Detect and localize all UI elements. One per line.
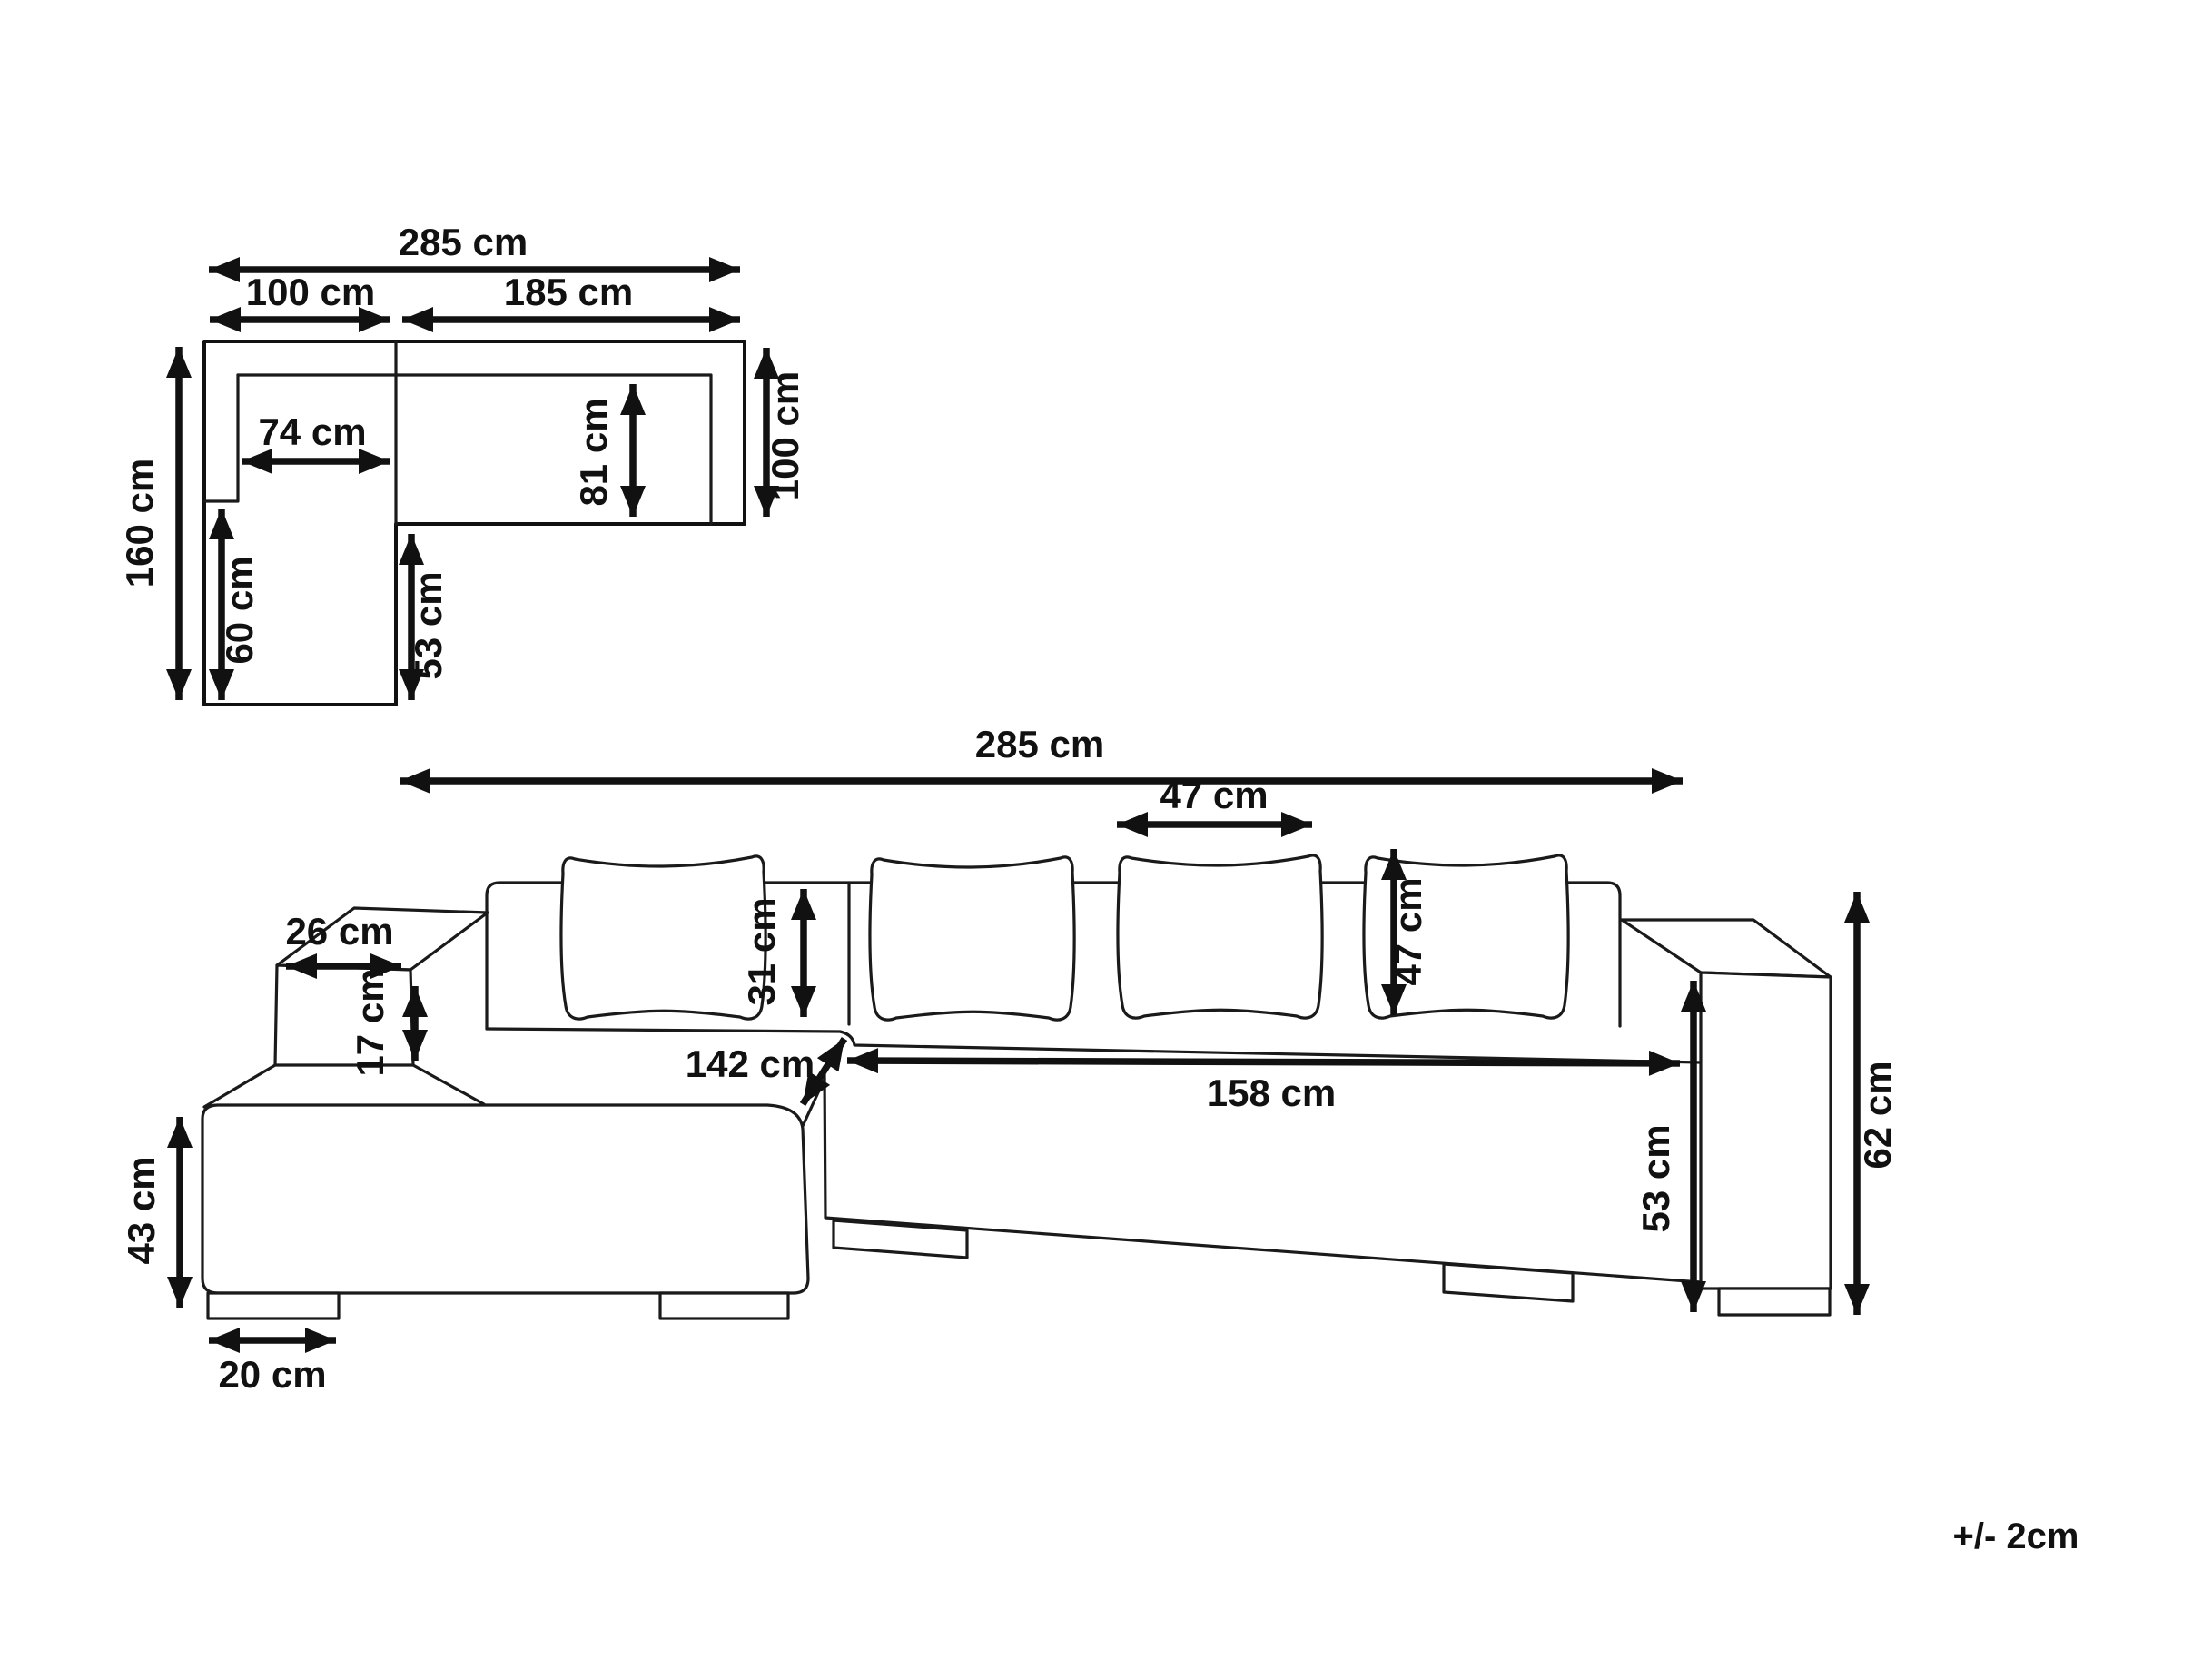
top-view: 285 cm 100 cm 185 cm 74 cm 160 cm 60 cm [118, 221, 806, 705]
dim-armrest-top-depth-label: 26 cm [285, 910, 393, 953]
chaise-foot-left [208, 1293, 339, 1318]
dim-chaise-height: 43 cm [120, 1117, 180, 1308]
right-armrest-top-face [1622, 920, 1831, 977]
dim-top-chaise-length-label: 60 cm [218, 556, 261, 664]
dim-top-right-seat-depth: 81 cm [572, 384, 633, 517]
dim-top-right-seat-depth-label: 81 cm [572, 398, 615, 506]
top-view-armrest-inner-line [204, 375, 238, 501]
left-armrest-chaise-edge-right [413, 1065, 484, 1104]
diagram-canvas: 285 cm 100 cm 185 cm 74 cm 160 cm 60 cm [0, 0, 2212, 1659]
dim-armrest-above-seat-label: 17 cm [349, 968, 391, 1076]
dim-top-seat-width: 74 cm [242, 410, 390, 461]
dim-chaise-length-label: 142 cm [686, 1042, 815, 1085]
dim-foot-width-label: 20 cm [218, 1353, 326, 1396]
left-armrest-chaise-edge-left [204, 1065, 275, 1107]
dim-top-seat-depth: 53 cm [407, 534, 449, 700]
cushion-2 [870, 857, 1074, 1020]
dim-chaise-height-label: 43 cm [120, 1156, 163, 1264]
dim-top-total-depth-label: 160 cm [118, 459, 161, 588]
dim-top-right-depth-label: 100 cm [764, 371, 806, 500]
chaise-foot-right [660, 1293, 788, 1318]
dim-top-chaise-length: 60 cm [218, 509, 261, 700]
dim-front-total-width-label: 285 cm [975, 723, 1104, 765]
left-armrest-front-face [275, 965, 413, 1065]
dim-seat-width: 158 cm [847, 1061, 1680, 1114]
dim-top-right-width-label: 185 cm [504, 271, 633, 313]
dim-top-right-width: 185 cm [402, 271, 740, 320]
dim-cushion-width-label: 47 cm [1160, 774, 1268, 816]
cushion-3 [1118, 855, 1322, 1018]
dim-top-total-depth: 160 cm [118, 347, 179, 700]
top-view-outline [204, 341, 745, 705]
dim-seat-height: 53 cm [1634, 981, 1694, 1312]
dim-armrest-height: 62 cm [1856, 892, 1899, 1315]
dim-foot-width: 20 cm [209, 1340, 336, 1396]
sofa-dimension-diagram: 285 cm 100 cm 185 cm 74 cm 160 cm 60 cm [0, 0, 2212, 1659]
dim-front-total-width: 285 cm [400, 723, 1683, 781]
cushion-1 [561, 856, 765, 1019]
seat-front-edge [487, 1029, 1701, 1062]
dim-top-total-width-label: 285 cm [399, 221, 528, 263]
dim-chaise-length: 142 cm [686, 1039, 844, 1104]
right-armrest-front-face [1701, 973, 1831, 1289]
dim-backrest-height-label: 31 cm [740, 897, 783, 1005]
tolerance-note: +/- 2cm [1953, 1516, 2079, 1556]
dim-top-total-width: 285 cm [209, 221, 740, 270]
dim-top-seat-width-label: 74 cm [258, 410, 366, 453]
dim-top-left-width: 100 cm [210, 271, 390, 320]
dim-seat-height-label: 53 cm [1634, 1124, 1677, 1232]
right-armrest-foot [1719, 1289, 1830, 1315]
dim-top-right-depth: 100 cm [764, 348, 806, 517]
right-base-foot-right [1444, 1264, 1573, 1301]
dim-armrest-height-label: 62 cm [1856, 1061, 1899, 1169]
dim-top-seat-depth-label: 53 cm [407, 571, 449, 679]
dim-top-left-width-label: 100 cm [246, 271, 375, 313]
dim-cushion-height-label: 47 cm [1387, 877, 1429, 985]
front-view: 285 cm 47 cm 31 cm 47 cm 26 cm 17 cm [120, 723, 1899, 1396]
dim-seat-width-label: 158 cm [1207, 1071, 1336, 1114]
chaise-block [202, 1105, 808, 1293]
dim-backrest-height: 31 cm [740, 889, 804, 1017]
